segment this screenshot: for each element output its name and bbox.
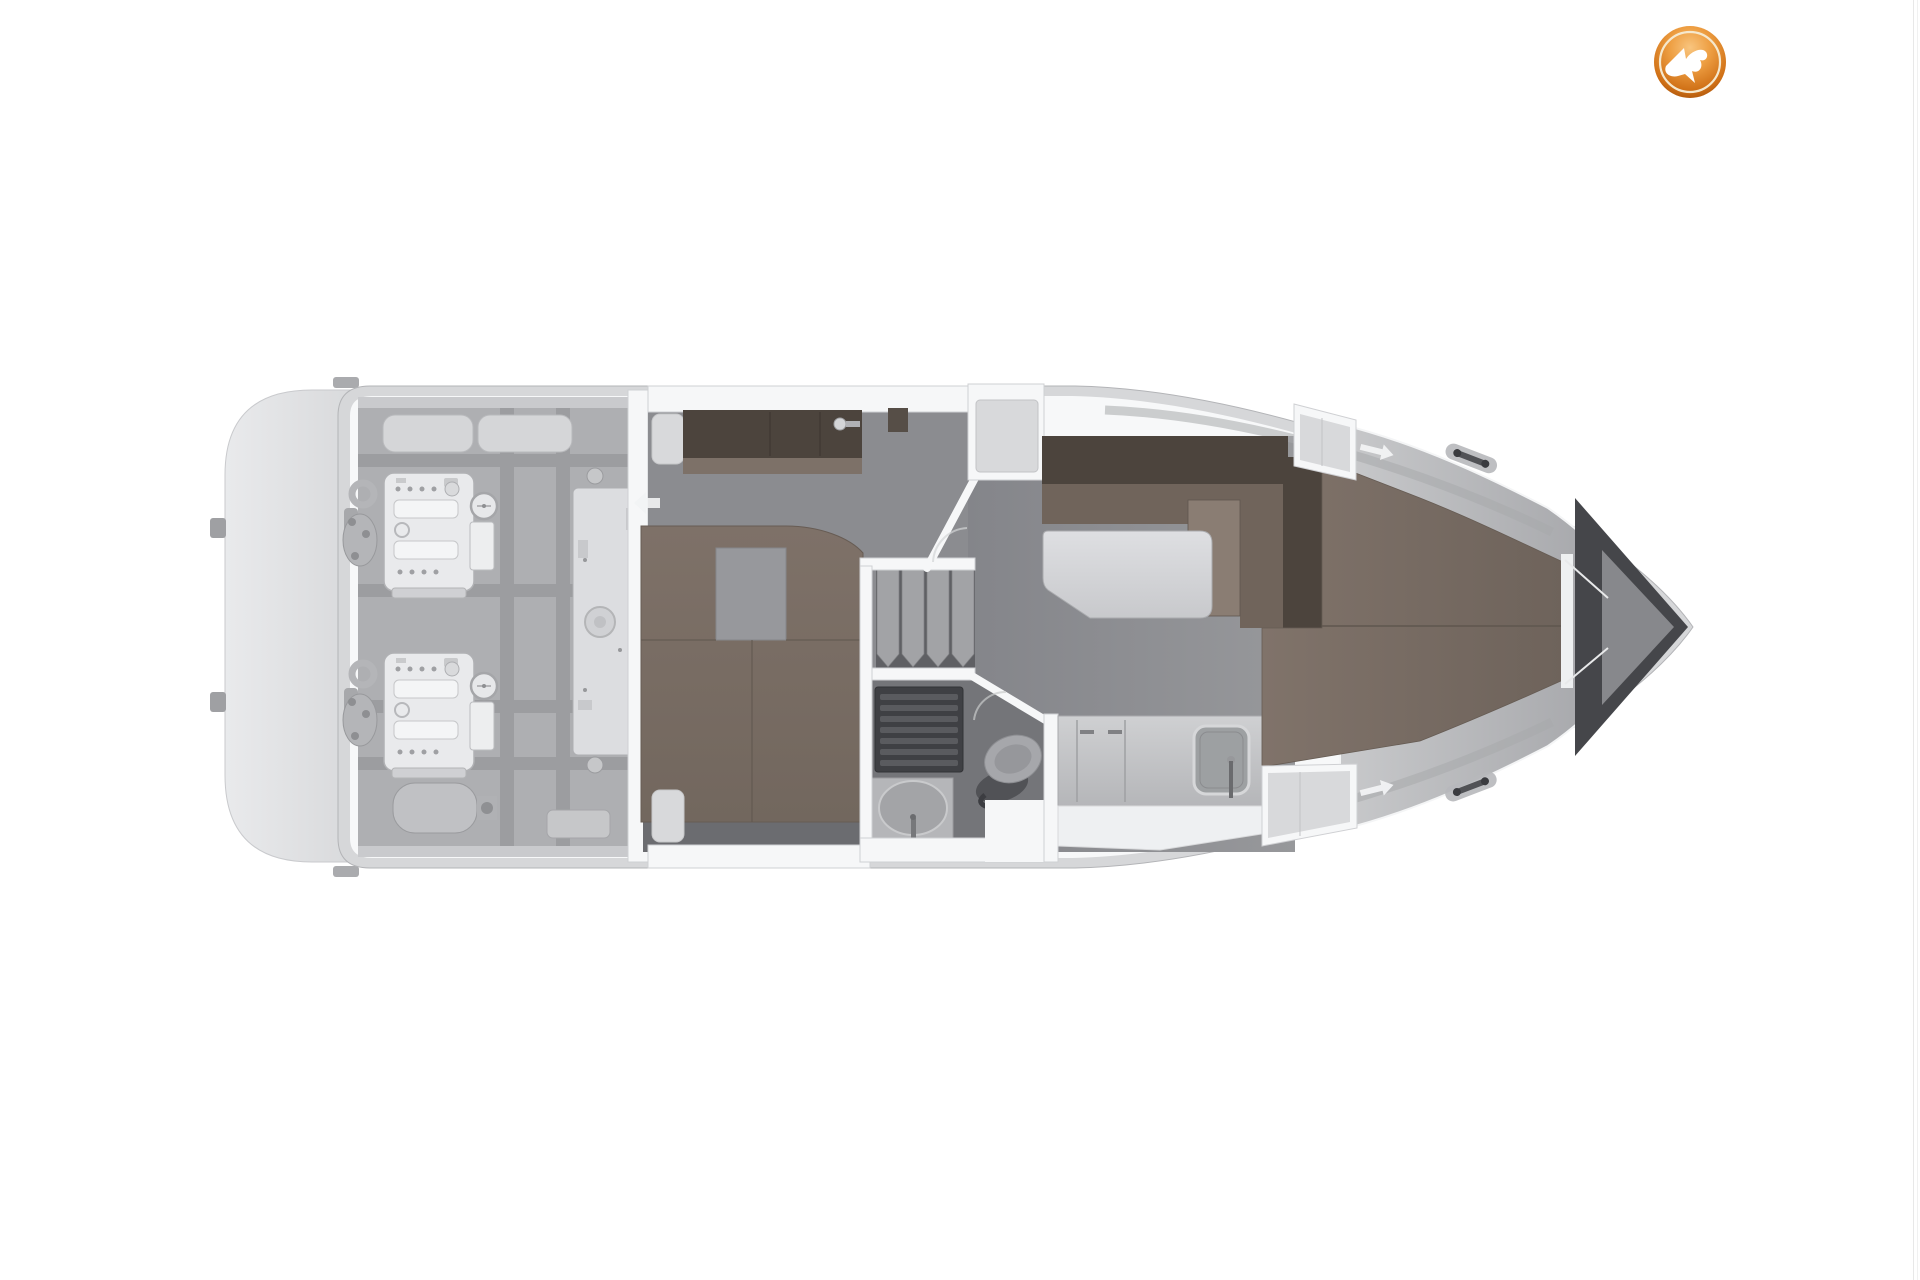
dinette-side-seat: [1240, 484, 1288, 628]
vberth-headboard: [1283, 457, 1322, 628]
yacht-floor-plan: [0, 0, 1920, 1280]
deck-fitting: [587, 757, 603, 773]
stair-step: [927, 570, 949, 667]
engine-room-lip-top: [358, 397, 628, 408]
tank-cap-inner: [594, 616, 606, 628]
bow-bulkhead-wall: [1561, 554, 1573, 688]
muffler: [393, 783, 477, 833]
lamp-stem: [846, 421, 860, 427]
grate-rib: [880, 716, 958, 722]
grate-rib: [880, 705, 958, 711]
aft-cabin-top-wall: [648, 386, 968, 412]
companionway-stairs: [876, 570, 975, 683]
fridge-handle: [1080, 730, 1094, 734]
stair-step: [952, 570, 974, 667]
galley-sink: [1194, 726, 1249, 794]
stringer-beam: [556, 408, 570, 846]
wall-galley-left: [1044, 714, 1058, 862]
deck-hatch: [383, 415, 473, 452]
deck-fitting: [587, 468, 603, 484]
tank-bolt: [618, 648, 622, 652]
tank-bolt: [583, 688, 587, 692]
platform-strut: [210, 518, 226, 538]
window-cutout: [976, 400, 1038, 472]
stern-corner-fitting: [333, 377, 359, 388]
platform-strut: [210, 692, 226, 712]
cabin-lamp: [834, 418, 846, 430]
dinette: [1042, 436, 1288, 628]
berth-inset: [716, 548, 786, 640]
stern-corner-fitting: [333, 866, 359, 877]
grate-rib: [880, 738, 958, 744]
tank-detail: [578, 700, 592, 710]
galley: [1058, 716, 1262, 850]
wall-bed-side: [860, 566, 872, 848]
wardrobe: [683, 410, 862, 458]
equipment-box: [547, 810, 610, 838]
grate-rib: [880, 760, 958, 766]
muffler-outlet: [481, 802, 493, 814]
stringer-beam: [500, 408, 514, 846]
aft-cabin-bottom-wall: [648, 845, 870, 868]
wall-stairs-bottom: [860, 668, 975, 680]
grate-rib: [880, 727, 958, 733]
basin-drain: [910, 814, 916, 820]
grate-rib: [880, 749, 958, 755]
page: [0, 0, 1920, 1280]
tank-detail: [578, 540, 588, 558]
fridge-handle: [1108, 730, 1122, 734]
wardrobe-front: [683, 458, 862, 474]
engine-room-lip-bottom: [358, 846, 628, 857]
corner-cabinet: [888, 408, 908, 432]
wall-stairs-top: [860, 558, 975, 570]
window-cutout: [652, 414, 684, 464]
grate-rib: [880, 694, 958, 700]
tank-bolt: [583, 558, 587, 562]
stair-step: [902, 570, 924, 667]
engine-room: [343, 397, 637, 857]
stringer-beam: [358, 454, 628, 467]
dinette-backrest: [1042, 436, 1288, 484]
deck-hatch: [478, 415, 572, 452]
window-cutout: [652, 790, 684, 842]
stair-step: [877, 570, 899, 667]
